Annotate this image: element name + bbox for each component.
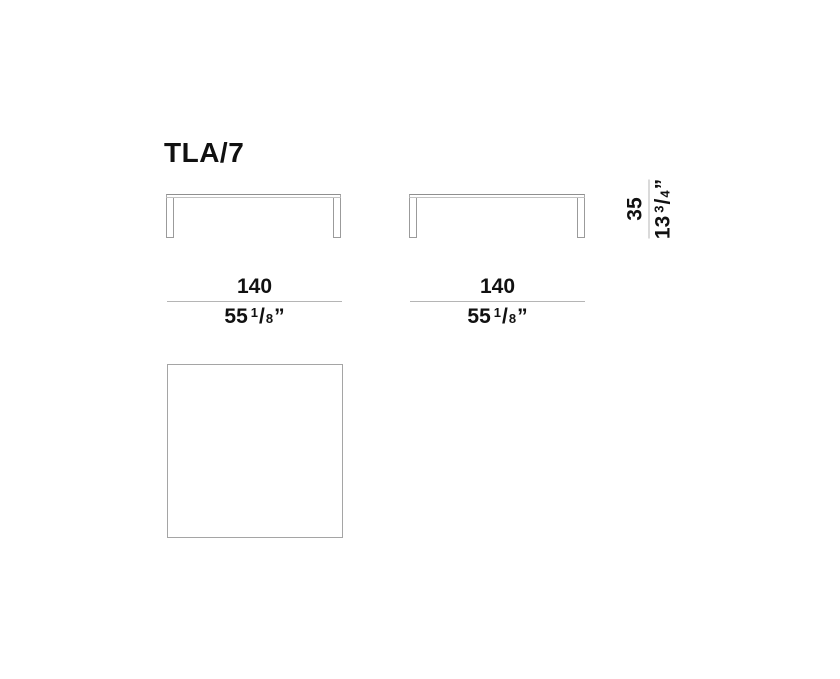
product-code-title: TLA/7 bbox=[164, 137, 244, 169]
fraction-denominator: 8 bbox=[509, 305, 516, 333]
front-left-leg-outline bbox=[166, 196, 174, 238]
side-left-leg-outline bbox=[409, 196, 417, 238]
fraction-denominator: 4 bbox=[653, 190, 679, 197]
width-dimension-front: 140 55 1 / 8 ” bbox=[167, 273, 342, 333]
fraction-slash: / bbox=[502, 303, 508, 331]
inch-mark: ” bbox=[517, 303, 528, 331]
front-elevation-view bbox=[166, 194, 341, 238]
inch-mark: ” bbox=[651, 179, 677, 190]
fraction-denominator: 8 bbox=[266, 305, 273, 333]
imperial-whole-number: 13 bbox=[651, 216, 677, 239]
width-front-metric-label: 140 bbox=[167, 273, 342, 301]
side-elevation-view bbox=[409, 194, 585, 238]
tabletop-outline-side bbox=[409, 194, 585, 198]
imperial-whole-number: 55 bbox=[224, 303, 247, 331]
tabletop-outline-front bbox=[166, 194, 341, 198]
imperial-whole-number: 55 bbox=[467, 303, 490, 331]
width-side-imperial-label: 55 1 / 8 ” bbox=[410, 302, 585, 333]
width-dimension-side: 140 55 1 / 8 ” bbox=[410, 273, 585, 333]
fraction-slash: / bbox=[259, 303, 265, 331]
side-right-leg-outline bbox=[577, 196, 585, 238]
height-imperial-label: 13 3 / 4 ” bbox=[650, 180, 678, 239]
fraction-numerator: 3 bbox=[647, 205, 673, 212]
front-right-leg-outline bbox=[333, 196, 341, 238]
fraction-numerator: 1 bbox=[494, 299, 501, 327]
width-side-metric-label: 140 bbox=[410, 273, 585, 301]
height-metric-label: 35 bbox=[623, 180, 649, 239]
plan-view-square bbox=[167, 364, 343, 538]
inch-mark: ” bbox=[274, 303, 285, 331]
technical-drawing-canvas: TLA/7 140 55 1 / 8 ” 140 55 1 / 8 ” bbox=[0, 0, 840, 679]
width-front-imperial-label: 55 1 / 8 ” bbox=[167, 302, 342, 333]
height-dimension: 35 13 3 / 4 ” bbox=[623, 180, 677, 239]
fraction-slash: / bbox=[651, 199, 677, 205]
fraction-numerator: 1 bbox=[251, 299, 258, 327]
